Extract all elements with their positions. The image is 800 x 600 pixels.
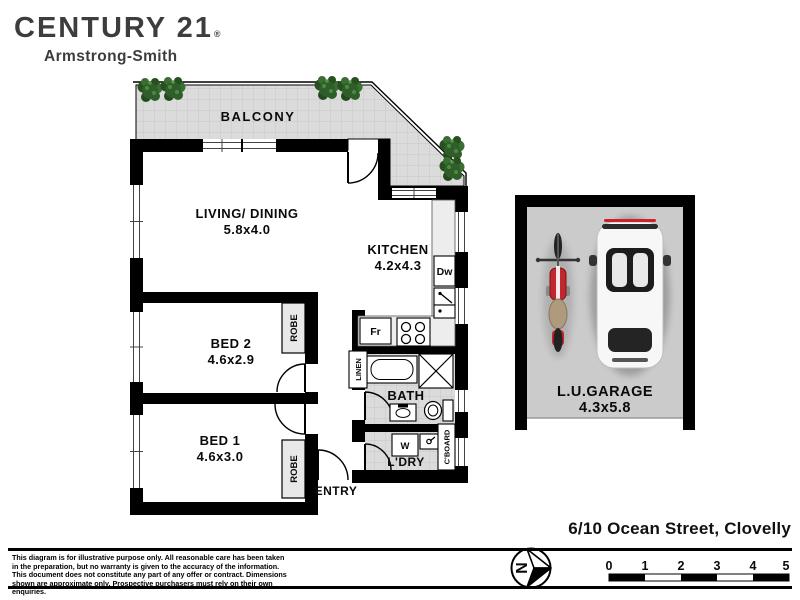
bath-label: BATH xyxy=(387,388,424,403)
scale-tick-3: 3 xyxy=(714,559,721,573)
bathtub xyxy=(367,356,417,383)
garage-label: L.U.GARAGE xyxy=(557,384,653,400)
bed1-dims: 4.6x3.0 xyxy=(197,449,244,464)
garage-dims: 4.3x5.8 xyxy=(579,400,631,416)
wall-kitchen-bath xyxy=(352,346,468,354)
doorway-bath xyxy=(352,390,365,420)
bed1-label: BED 1 xyxy=(200,433,241,448)
wall-bed2-bed1 xyxy=(130,393,318,404)
scale-bar: 0 1 2 3 4 5 xyxy=(606,559,790,581)
divider-bottom xyxy=(8,586,792,589)
wall-balcony-kitchen xyxy=(378,139,390,186)
plant-icon xyxy=(440,136,465,160)
sliding-door-living xyxy=(203,139,241,152)
window-kitchen-right-2 xyxy=(455,288,468,324)
basin xyxy=(390,404,416,421)
dishwasher-label: Dw xyxy=(437,266,454,278)
disclaimer-text: This diagram is for illustrative purpose… xyxy=(12,554,290,597)
flyer-page: CENTURY 21® Armstrong-Smith xyxy=(0,0,800,600)
car-icon xyxy=(589,216,671,376)
kitchen-sink xyxy=(434,288,455,318)
window-living-top xyxy=(243,139,276,152)
door-bed1 xyxy=(275,404,305,434)
robe-bed1: ROBE xyxy=(282,440,305,498)
living-dims: 5.8x4.0 xyxy=(224,222,271,237)
fridge-label: Fr xyxy=(370,326,381,338)
garage: L.U.GARAGE 4.3x5.8 xyxy=(515,195,695,430)
entry-label: ENTRY xyxy=(315,484,358,498)
plant-icon xyxy=(315,76,340,100)
robe-bed2: ROBE xyxy=(282,303,305,353)
scale-tick-0: 0 xyxy=(606,559,613,573)
kitchen-dims: 4.2x4.3 xyxy=(375,258,422,273)
door-balcony xyxy=(348,152,378,183)
cupboard: C'BOARD xyxy=(438,424,455,470)
balcony-floor xyxy=(136,85,464,186)
window-bed2 xyxy=(130,312,143,382)
door-bed2 xyxy=(277,364,305,392)
bed2-label: BED 2 xyxy=(211,336,252,351)
sliding-door-kitchen xyxy=(392,188,436,198)
doorway-bed2 xyxy=(305,364,318,392)
divider-top xyxy=(8,548,792,551)
laundry-tub xyxy=(420,434,438,449)
compass-north-label: N xyxy=(512,562,529,574)
window-cupboard xyxy=(455,438,468,466)
laundry-label: L'DRY xyxy=(387,455,425,469)
plant-icon xyxy=(440,157,465,181)
toilet xyxy=(425,400,454,421)
window-bed1 xyxy=(130,415,143,488)
shower xyxy=(419,354,453,388)
wall-bath-laundry xyxy=(352,424,438,432)
property-address: 6/10 Ocean Street, Clovelly xyxy=(568,519,791,539)
scale-tick-1: 1 xyxy=(642,559,649,573)
washer-label: W xyxy=(401,441,410,452)
door-entry xyxy=(318,450,348,480)
window-living-left xyxy=(130,185,143,258)
kitchen-label: KITCHEN xyxy=(367,242,428,257)
scale-tick-5: 5 xyxy=(783,559,790,573)
robe-bed1-label: ROBE xyxy=(289,455,300,482)
doorway-bed1 xyxy=(305,404,318,434)
stove xyxy=(397,318,430,346)
scale-tick-2: 2 xyxy=(678,559,685,573)
floorplan-canvas: BALCONY xyxy=(0,0,800,600)
linen-closet: LINEN xyxy=(349,351,367,388)
bed2-dims: 4.6x2.9 xyxy=(208,352,255,367)
wall-living-bed2 xyxy=(130,292,318,303)
fridge: Fr xyxy=(360,318,391,344)
window-bath xyxy=(455,390,468,412)
wall-bottom xyxy=(130,502,318,515)
linen-label: LINEN xyxy=(354,358,363,381)
plant-icon xyxy=(338,77,363,101)
compass-icon: N xyxy=(512,549,552,588)
washing-machine: W xyxy=(392,434,418,456)
robe-bed2-label: ROBE xyxy=(289,314,300,341)
doorway-laundry xyxy=(352,442,365,470)
scale-tick-4: 4 xyxy=(750,559,757,573)
cupboard-label: C'BOARD xyxy=(442,429,451,464)
plant-icon xyxy=(161,77,186,101)
dishwasher: Dw xyxy=(434,256,455,286)
balcony-label: BALCONY xyxy=(221,109,296,124)
living-label: LIVING/ DINING xyxy=(195,206,298,221)
window-kitchen-right-1 xyxy=(455,212,468,252)
plant-icon xyxy=(138,78,163,102)
wall-laundry-bottom xyxy=(352,470,468,483)
